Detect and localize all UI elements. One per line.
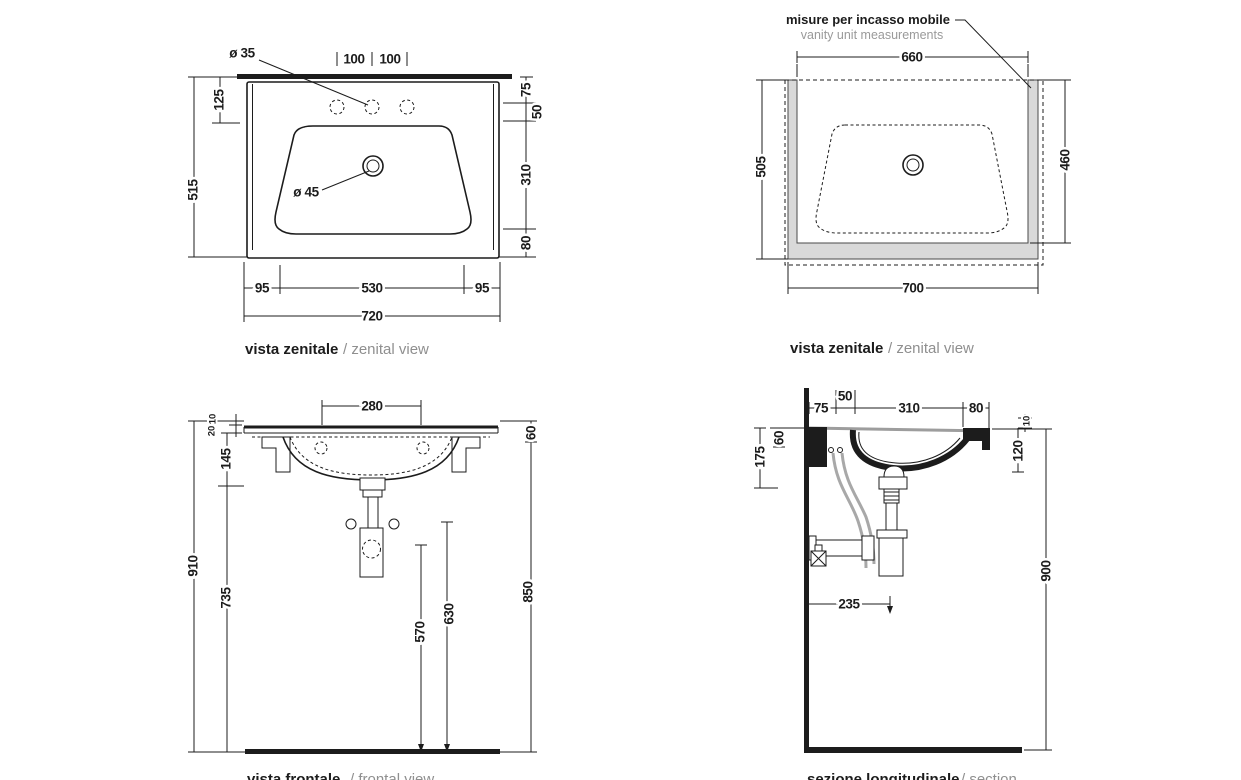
dim-margin-left: 95 (255, 281, 270, 296)
dim-rim-height: 850 (521, 581, 536, 602)
dim-rear-edge: 75 (519, 82, 534, 97)
dim-total-depth: 505 (754, 155, 769, 177)
dim-clearance: 735 (219, 586, 234, 608)
washbasin-rim-lines (253, 84, 494, 250)
fixing-hole-right (389, 519, 399, 529)
caption-section-light: / section (961, 771, 1017, 780)
dim-basin-inner: 310 (898, 401, 919, 416)
bowl-hidden-line (290, 437, 452, 475)
dim-basin-depth: 145 (219, 447, 234, 469)
caption-vanity-light: / zenital view (888, 340, 974, 357)
view-frontal: 280 10 20 145 910 735 60 850 570 630 vis… (186, 399, 539, 780)
dim-total-height: 910 (186, 555, 201, 576)
dim-rim-height: 900 (1039, 560, 1054, 581)
dim-top-lip: 10 (208, 414, 219, 425)
dim-lip-thickness: 10 (1022, 416, 1033, 427)
floor-section (804, 747, 1022, 753)
vanity-note-light: vanity unit measurements (801, 28, 943, 42)
wall-line (237, 74, 512, 79)
basin-hidden-outline (816, 125, 1008, 233)
dim-margin-right: 95 (475, 281, 490, 296)
dim-hole-pitch-b: 100 (379, 52, 400, 67)
dim-front-height: 120 (1011, 440, 1026, 461)
bowl-front-outline (283, 437, 459, 480)
dim-hole-pitch-a: 100 (343, 52, 364, 67)
dim-to-basin: 50 (530, 105, 545, 119)
drain-hole-inner (907, 159, 919, 171)
vanity-note-bold: misure per incasso mobile (786, 12, 950, 27)
hose-nut-right (838, 448, 843, 453)
dim-fixings-height: 630 (442, 603, 457, 624)
dim-hole-diameter: ø 35 (229, 46, 255, 61)
leader-drain-diameter (322, 171, 369, 190)
dim-trap-offset: 235 (838, 597, 860, 612)
dim-total-width: 700 (902, 281, 923, 296)
dim-front-lip: 80 (969, 401, 983, 416)
view-section: 75 50 310 80 60 175 10 120 235 900 sezio… (753, 388, 1054, 780)
vanity-unit-walls (788, 80, 1038, 259)
dim-bracket-drop: 175 (753, 445, 768, 467)
drain-hole-inner (367, 160, 379, 172)
wall-bracket-section (806, 427, 827, 467)
caption-zenital-light: / zenital view (343, 341, 429, 358)
dim-rear-to-holes: 125 (212, 88, 227, 110)
basin-outline (275, 126, 471, 234)
technical-drawing-sheet: ø 35 ø 45 100 100 125 515 75 50 310 80 9… (0, 0, 1241, 780)
drawing-canvas: ø 35 ø 45 100 100 125 515 75 50 310 80 9… (0, 0, 1241, 780)
dim-drain-diameter: ø 45 (293, 185, 319, 200)
caption-vanity-bold: vista zenitale (790, 340, 883, 357)
caption-frontal-light: / frontal view (350, 771, 434, 780)
view-zenital-top: ø 35 ø 45 100 100 125 515 75 50 310 80 9… (186, 46, 545, 359)
dim-total-depth: 515 (186, 178, 201, 200)
caption-section-bold: sezione longitudinale (807, 771, 960, 780)
dim-front-edge: 80 (519, 236, 534, 250)
washbasin-hidden-outline (785, 80, 1043, 265)
countertop-line (809, 428, 990, 431)
drain-hole-outer (363, 156, 383, 176)
caption-zenital-bold: vista zenitale (245, 341, 338, 358)
faucet-hole-hidden-right (417, 442, 429, 454)
dim-holes-width: 50 (838, 389, 852, 404)
dim-basin-depth: 310 (519, 164, 534, 185)
dim-rear-drop: 60 (772, 431, 787, 445)
floor-line (245, 749, 500, 754)
drain-assembly (360, 478, 385, 577)
fixing-hole-left (346, 519, 356, 529)
hose-nut-left (829, 448, 834, 453)
drain-hole-outer (903, 155, 923, 175)
front-lip-section (963, 428, 990, 441)
caption-frontal-bold: vista frontale (247, 771, 340, 780)
leader-vanity-note (955, 20, 1031, 88)
view-vanity-top: misure per incasso mobile vanity unit me… (754, 12, 1073, 357)
faucet-hole-hidden-left (315, 442, 327, 454)
dim-slab-front: 60 (524, 426, 539, 440)
dim-basin-width: 530 (361, 281, 382, 296)
front-lip-hook (982, 441, 990, 450)
dim-wall-to-holes: 75 (814, 401, 829, 416)
dim-fixing-pitch: 280 (361, 399, 382, 414)
dim-inner-width: 660 (901, 50, 922, 65)
faucet-holes (330, 100, 414, 114)
dim-trap-height: 570 (413, 621, 428, 642)
dim-total-width: 720 (361, 309, 382, 324)
dim-slab-thickness: 20 (207, 426, 218, 437)
dim-inner-depth: 460 (1058, 149, 1073, 170)
